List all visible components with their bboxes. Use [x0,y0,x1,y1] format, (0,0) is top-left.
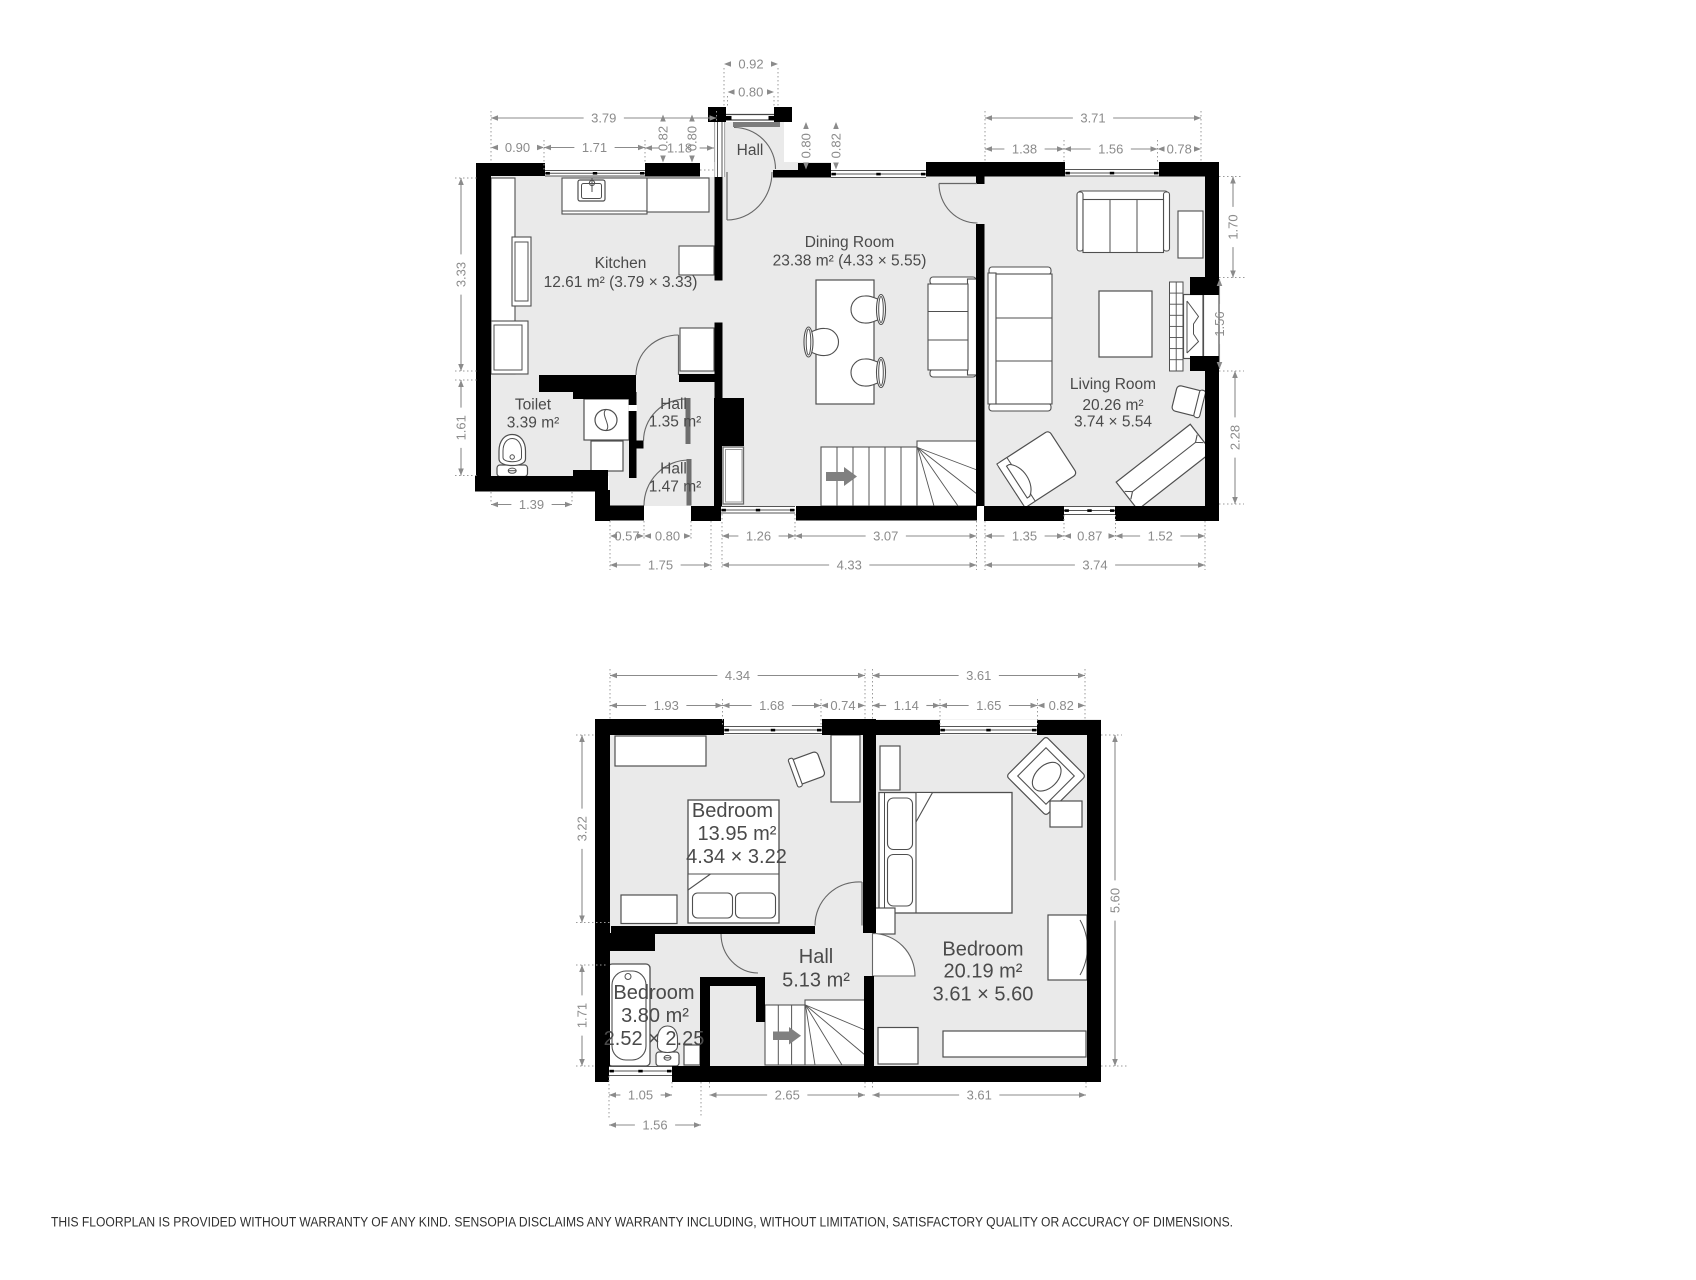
svg-text:1.05: 1.05 [628,1087,653,1102]
svg-text:13.95 m²: 13.95 m² [698,823,777,845]
svg-text:3.80 m²: 3.80 m² [621,1005,689,1027]
svg-text:0.80: 0.80 [655,528,680,543]
svg-text:Hall: Hall [737,142,764,159]
svg-text:2.52 × 2.25: 2.52 × 2.25 [604,1028,705,1050]
svg-text:Bedroom: Bedroom [692,800,773,822]
svg-text:1.93: 1.93 [654,698,679,713]
svg-text:3.61: 3.61 [966,668,991,683]
svg-text:1.39: 1.39 [519,497,544,512]
svg-text:1.56: 1.56 [1098,141,1123,156]
svg-text:3.61: 3.61 [967,1087,992,1102]
svg-text:0.82: 0.82 [1049,698,1074,713]
svg-text:Hall: Hall [660,461,687,478]
svg-text:1.35 m²: 1.35 m² [649,414,702,431]
svg-text:1.47 m²: 1.47 m² [649,479,702,496]
svg-text:3.07: 3.07 [873,528,898,543]
svg-text:3.22: 3.22 [574,816,589,841]
svg-text:4.33: 4.33 [837,557,862,572]
svg-text:3.39 m²: 3.39 m² [507,415,560,432]
svg-text:1.56: 1.56 [642,1117,667,1132]
svg-text:0.80: 0.80 [684,126,699,151]
svg-text:3.74 × 5.54: 3.74 × 5.54 [1074,414,1152,431]
svg-text:1.38: 1.38 [1012,141,1037,156]
svg-text:Toilet: Toilet [515,397,552,414]
svg-text:3.71: 3.71 [1080,110,1105,125]
svg-text:0.57: 0.57 [614,528,639,543]
svg-text:0.90: 0.90 [505,140,530,155]
svg-text:0.80: 0.80 [738,84,763,99]
svg-text:1.56: 1.56 [1212,311,1227,336]
svg-text:5.13 m²: 5.13 m² [782,970,850,992]
svg-text:Bedroom: Bedroom [613,982,694,1004]
svg-text:2.65: 2.65 [775,1087,800,1102]
svg-text:5.60: 5.60 [1107,888,1122,913]
svg-text:1.61: 1.61 [453,415,468,440]
svg-text:1.26: 1.26 [746,528,771,543]
svg-text:Living Room: Living Room [1070,376,1156,393]
svg-text:3.74: 3.74 [1082,557,1107,572]
svg-text:0.80: 0.80 [798,133,813,158]
svg-text:0.92: 0.92 [738,56,763,71]
svg-text:Bedroom: Bedroom [942,939,1023,961]
svg-text:0.82: 0.82 [655,126,670,151]
svg-text:1.71: 1.71 [582,140,607,155]
svg-text:Kitchen: Kitchen [595,255,647,272]
svg-text:20.19 m²: 20.19 m² [944,961,1023,983]
svg-text:1.75: 1.75 [648,557,673,572]
svg-text:THIS FLOORPLAN IS PROVIDED WIT: THIS FLOORPLAN IS PROVIDED WITHOUT WARRA… [51,1215,1233,1230]
svg-text:Dining Room: Dining Room [805,234,895,251]
svg-text:0.74: 0.74 [830,698,855,713]
svg-text:1.52: 1.52 [1148,528,1173,543]
svg-text:1.35: 1.35 [1012,528,1037,543]
svg-text:0.78: 0.78 [1167,141,1192,156]
svg-text:1.65: 1.65 [976,698,1001,713]
svg-text:3.79: 3.79 [591,110,616,125]
svg-text:4.34: 4.34 [725,668,750,683]
svg-text:4.34 × 3.22: 4.34 × 3.22 [686,846,787,868]
svg-text:0.87: 0.87 [1077,528,1102,543]
svg-text:Hall: Hall [660,396,687,413]
svg-text:0.82: 0.82 [828,133,843,158]
svg-text:2.28: 2.28 [1227,425,1242,450]
svg-text:12.61 m² (3.79 × 3.33): 12.61 m² (3.79 × 3.33) [544,274,698,291]
svg-text:23.38 m² (4.33 × 5.55): 23.38 m² (4.33 × 5.55) [773,253,927,270]
svg-text:1.14: 1.14 [894,698,919,713]
svg-text:Hall: Hall [799,946,833,968]
svg-text:1.70: 1.70 [1225,214,1240,239]
svg-text:20.26 m²: 20.26 m² [1082,397,1143,414]
svg-text:1.68: 1.68 [759,698,784,713]
svg-text:3.33: 3.33 [453,262,468,287]
svg-text:3.61 × 5.60: 3.61 × 5.60 [933,984,1034,1006]
svg-text:1.71: 1.71 [574,1003,589,1028]
